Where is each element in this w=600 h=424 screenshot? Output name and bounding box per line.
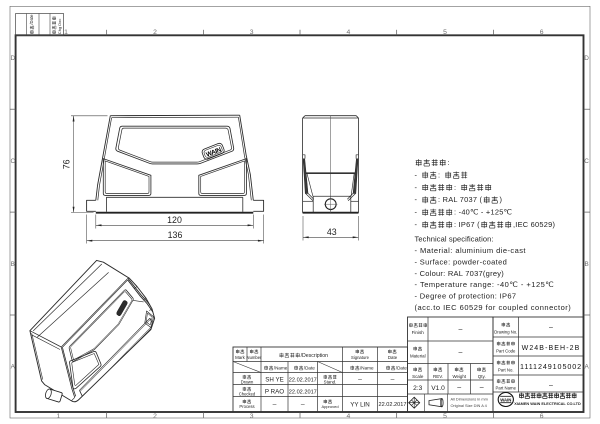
svg-text:(acc.to IEC 60529 for coup: (acc.to IEC 60529 for coupled connector) [415,303,572,312]
svg-text:: -40℃ - +125℃: : -40℃ - +125℃ [454,208,512,217]
svg-text:P RAO: P RAO [265,389,284,396]
svg-text:A: A [584,364,589,371]
svg-text:43: 43 [327,227,337,237]
svg-text:22.02.2017: 22.02.2017 [289,389,317,395]
svg-text:–: – [459,350,463,357]
svg-text:WAIN: WAIN [500,398,511,403]
svg-text:Part Name: Part Name [495,385,516,390]
svg-text:): ) [500,195,502,204]
svg-text:XIAMEN WAIN ELECTRICAL CO.LTD: XIAMEN WAIN ELECTRICAL CO.LTD [514,402,581,406]
svg-text:: IP67 (: : IP67 ( [454,220,480,229]
svg-text:22.02.2017: 22.02.2017 [289,377,317,383]
svg-text::: : [438,170,440,179]
svg-text:All Dimensions in mm: All Dimensions in mm [451,397,488,402]
svg-text:C: C [10,158,15,165]
svg-text:Qty.: Qty. [478,374,486,379]
svg-text:–: – [301,401,305,408]
svg-text:Part No.: Part No. [498,367,514,372]
svg-text:3: 3 [250,29,254,36]
svg-text:6: 6 [540,413,544,420]
svg-text:3: 3 [250,413,254,420]
svg-text:–: – [358,376,362,383]
svg-text:76: 76 [61,159,71,169]
svg-text:5: 5 [443,29,447,36]
svg-text:6: 6 [540,29,544,36]
svg-text:–: – [549,325,553,332]
svg-text:2: 2 [153,29,157,36]
svg-text:/Date: /Date [304,365,315,370]
svg-text:Chg Doc: Chg Doc [57,19,62,35]
svg-text:- Temperature range: -40℃: - Temperature range: -40℃ - +125℃ [415,280,555,289]
svg-text::: : [448,158,450,167]
svg-text:/Name: /Name [360,365,374,370]
svg-text:/Name: /Name [274,365,288,370]
svg-text:1: 1 [56,413,60,420]
svg-text:1111249105002: 1111249105002 [520,362,582,371]
svg-text:D: D [10,55,15,62]
svg-text:Date: Date [388,355,398,360]
svg-text:–: – [459,327,463,334]
svg-text:Drawing No.: Drawing No. [494,329,517,334]
svg-text:V1.0: V1.0 [431,385,445,392]
svg-text:Number: Number [247,355,262,360]
svg-text:22.02.2017: 22.02.2017 [379,402,407,408]
svg-text::: : [454,183,456,192]
svg-text:D: D [584,55,589,62]
svg-text:Finish: Finish [412,330,425,335]
svg-text:5: 5 [443,413,447,420]
svg-text:YY LIN: YY LIN [350,401,370,408]
svg-text:Part Code: Part Code [496,348,516,353]
svg-text:W24B-BEH-2B: W24B-BEH-2B [522,345,581,352]
svg-text:- Colour: RAL 7037(grey): - Colour: RAL 7037(grey) [415,269,505,278]
svg-text:B: B [11,261,15,268]
svg-text:- Surface: powder-coated: - Surface: powder-coated [415,257,508,266]
svg-text:–: – [457,385,461,392]
svg-text:–: – [480,385,484,392]
svg-text:Checked: Checked [239,391,256,396]
svg-text:C: C [584,158,589,165]
svg-text:4: 4 [346,29,350,36]
svg-text:2:3: 2:3 [413,385,422,392]
svg-text:A: A [11,364,16,371]
svg-text:Technical specification:: Technical specification: [415,235,494,244]
svg-text:REV.: REV. [433,374,443,379]
svg-text:: RAL 7037 (: : RAL 7037 ( [438,195,483,204]
svg-text:- Material: aluminium die-: - Material: aluminium die-cast [415,246,527,255]
svg-text:Scale: Scale [412,374,424,379]
svg-text:Drawn: Drawn [241,379,254,384]
svg-text:- Degree of protection: I: - Degree of protection: IP67 [415,292,517,301]
svg-text:1: 1 [64,29,68,36]
svg-text:/Date: /Date [396,365,407,370]
svg-text:120: 120 [167,215,182,225]
svg-text:/Description: /Description [301,353,329,359]
svg-text:136: 136 [168,230,183,240]
svg-text:2: 2 [153,413,157,420]
svg-text:B: B [584,261,588,268]
svg-text:Weight: Weight [452,374,466,379]
svg-text:–: – [549,382,553,389]
svg-text:–: – [273,401,277,408]
svg-text:Original Size DIN A 4: Original Size DIN A 4 [451,403,488,408]
svg-text:–: – [391,376,395,383]
svg-text:Stand.: Stand. [324,379,337,384]
svg-text:Process: Process [239,404,254,409]
svg-text:SH YE: SH YE [265,377,283,384]
svg-text:Approved: Approved [321,404,338,409]
svg-text:Mark: Mark [235,355,246,360]
svg-text:,IEC 60529): ,IEC 60529) [513,220,555,229]
svg-text:4: 4 [346,413,350,420]
svg-text:Material: Material [410,353,426,358]
svg-text:/Date: /Date [29,14,34,25]
svg-text:Signature: Signature [351,355,370,360]
